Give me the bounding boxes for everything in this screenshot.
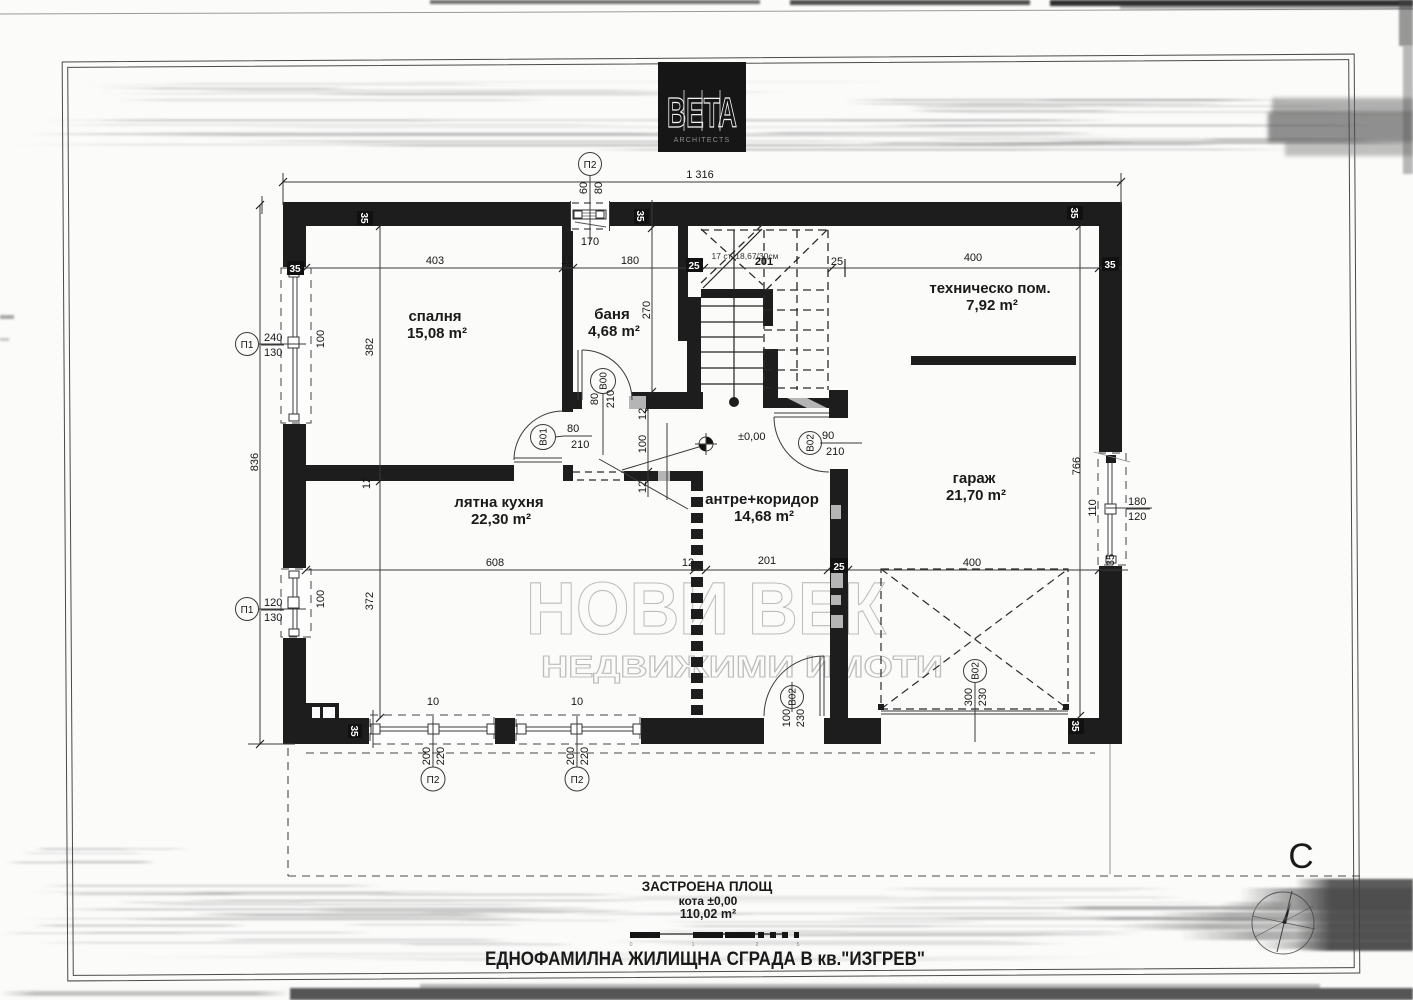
svg-text:130: 130 [264,612,282,624]
svg-text:П2: П2 [584,160,597,171]
svg-text:180: 180 [621,255,639,267]
svg-text:4,68 m²: 4,68 m² [588,323,640,340]
svg-text:П2: П2 [427,775,440,786]
svg-text:836: 836 [249,453,261,471]
svg-text:35: 35 [1069,720,1080,732]
svg-text:403: 403 [426,255,444,267]
svg-text:130: 130 [264,347,282,359]
svg-text:35: 35 [289,264,301,275]
svg-text:17 ст. 18,67/30см: 17 ст. 18,67/30см [712,251,779,261]
svg-text:спалня: спалня [408,308,461,325]
svg-text:220: 220 [435,747,447,765]
svg-text:60: 60 [578,182,590,194]
svg-text:1 316: 1 316 [686,169,714,181]
svg-text:120: 120 [1128,511,1146,523]
svg-text:120: 120 [264,597,282,609]
svg-text:12: 12 [637,408,649,420]
svg-text:210: 210 [826,446,844,458]
svg-text:антре+коридор: антре+коридор [705,491,819,508]
svg-text:90: 90 [822,430,834,442]
svg-text:15,08 m²: 15,08 m² [407,325,467,342]
svg-text:35: 35 [634,210,645,222]
svg-text:35: 35 [358,212,369,224]
svg-text:210: 210 [571,439,589,451]
svg-text:гараж: гараж [953,470,996,487]
svg-text:400: 400 [963,557,981,569]
svg-text:110: 110 [1087,499,1099,517]
svg-text:B00: B00 [599,372,610,390]
svg-text:НЕДВИЖИМИ ИМОТИ: НЕДВИЖИМИ ИМОТИ [541,649,943,684]
svg-text:1: 1 [691,942,694,948]
svg-text:100: 100 [637,435,649,453]
svg-text:техническо пом.: техническо пом. [929,280,1050,297]
svg-text:180: 180 [1128,496,1146,508]
svg-text:7,92 m²: 7,92 m² [966,297,1018,314]
svg-text:608: 608 [486,557,504,569]
svg-text:100: 100 [315,590,327,608]
svg-text:5: 5 [796,942,799,948]
svg-text:110,02 m²: 110,02 m² [680,907,736,921]
svg-text:12: 12 [561,255,573,267]
svg-text:80: 80 [593,182,605,194]
svg-text:35: 35 [1105,554,1117,566]
svg-text:B02: B02 [788,688,799,706]
svg-text:220: 220 [579,747,591,765]
svg-text:25: 25 [833,562,845,573]
svg-text:12: 12 [361,477,373,489]
svg-text:80: 80 [567,423,579,435]
svg-text:170: 170 [581,236,599,248]
svg-text:кота ±0,00: кота ±0,00 [679,894,738,908]
svg-text:240: 240 [264,332,282,344]
svg-text:ЗАСТРОЕНА ПЛОЩ: ЗАСТРОЕНА ПЛОЩ [642,879,773,894]
svg-text:25: 25 [831,256,843,268]
svg-text:B02: B02 [806,434,817,452]
svg-text:ARCHITECTS: ARCHITECTS [674,137,731,144]
svg-text:400: 400 [964,252,982,264]
svg-text:201: 201 [758,555,776,567]
svg-text:B01: B01 [539,428,550,446]
svg-text:22,30 m²: 22,30 m² [471,511,531,528]
svg-text:25: 25 [688,261,700,272]
svg-text:2: 2 [755,942,758,948]
svg-text:35: 35 [348,725,359,737]
svg-text:372: 372 [364,592,376,610]
svg-text:B02: B02 [971,662,982,680]
svg-text:300: 300 [963,688,975,706]
svg-text:П1: П1 [241,340,254,351]
svg-text:C: C [1288,837,1313,876]
svg-text:100: 100 [315,330,327,348]
svg-text:21,70 m²: 21,70 m² [946,487,1006,504]
svg-text:230: 230 [977,688,989,706]
svg-text:14,68 m²: 14,68 m² [734,508,794,525]
svg-text:ЕДНОФАМИЛНА ЖИЛИЩНА СГРАДА В к: ЕДНОФАМИЛНА ЖИЛИЩНА СГРАДА В кв."ИЗГРЕВ" [485,949,925,970]
svg-text:210: 210 [605,390,617,408]
svg-text:35: 35 [1104,260,1116,271]
svg-text:35: 35 [1068,207,1079,219]
svg-text:П2: П2 [571,775,584,786]
svg-text:80: 80 [589,393,601,405]
svg-text:лятна кухня: лятна кухня [454,494,543,511]
svg-text:230: 230 [795,709,807,727]
svg-text:10: 10 [427,696,439,708]
svg-text:±0,00: ±0,00 [738,431,765,443]
svg-text:баня: баня [594,306,629,323]
svg-text:10: 10 [571,696,583,708]
svg-text:766: 766 [1071,457,1083,475]
svg-text:П1: П1 [241,605,254,616]
svg-text:0: 0 [629,942,632,948]
svg-text:382: 382 [364,338,376,356]
svg-text:270: 270 [641,301,653,319]
svg-text:12: 12 [637,481,649,493]
svg-text:100: 100 [781,709,793,727]
svg-text:200: 200 [565,747,577,765]
svg-text:12: 12 [682,557,694,569]
svg-text:200: 200 [421,747,433,765]
